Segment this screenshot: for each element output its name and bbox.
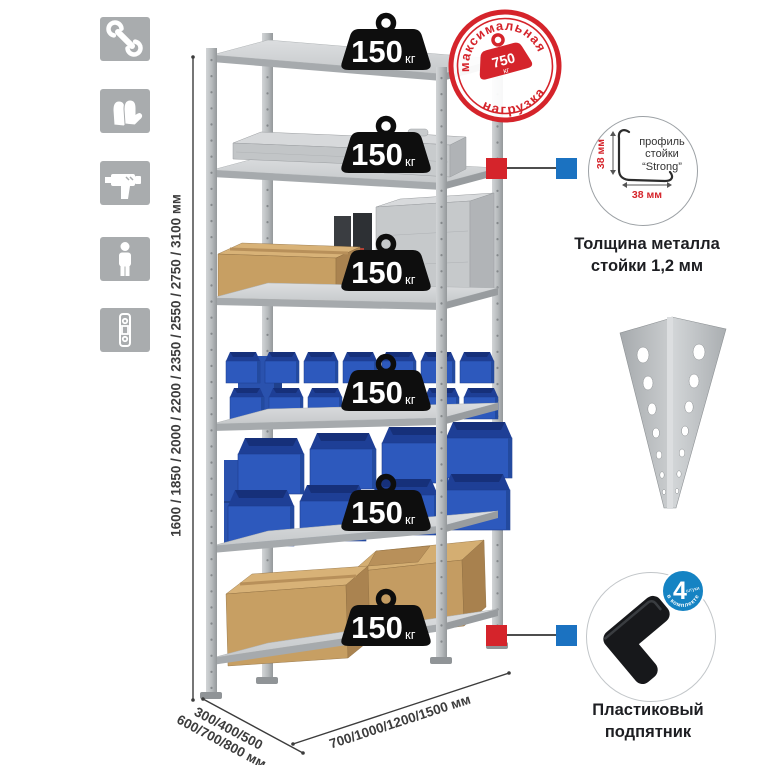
sidebar-icon-tools [100, 17, 150, 61]
svg-text:кг: кг [405, 512, 416, 527]
shelf-load-badge-2: 150 кг [321, 115, 451, 179]
svg-text:профиль: профиль [639, 136, 685, 148]
width-dimension-line [291, 671, 511, 746]
person-icon [101, 237, 149, 281]
svg-text:кг: кг [405, 627, 416, 642]
gloves-icon [101, 89, 149, 133]
svg-text:150: 150 [351, 255, 403, 290]
caption-line: подпятник [548, 722, 748, 744]
svg-text:кг: кг [405, 154, 416, 169]
callout-blue-marker-bottom [556, 625, 577, 646]
profile-thickness-caption: Толщина металла стойки 1,2 мм [547, 234, 747, 278]
max-load-stamp-icon: максимальная нагрузка 750 кг [438, 2, 572, 130]
plastic-foot-caption: Пластиковый подпятник [548, 700, 748, 744]
drill-icon [101, 161, 149, 205]
caption-line: Толщина металла [547, 234, 747, 256]
shelving-infographic: 1600 / 1850 / 2000 / 2200 / 2350 / 2550 … [0, 0, 765, 765]
svg-text:38 мм: 38 мм [595, 139, 607, 169]
svg-text:150: 150 [351, 610, 403, 645]
sidebar-icon-gloves [100, 89, 150, 133]
svg-text:150: 150 [351, 34, 403, 69]
max-load-stamp: максимальная нагрузка 750 кг [438, 2, 572, 130]
shelf-load-badge-3: 150 кг [321, 233, 451, 297]
svg-text:стойки: стойки [645, 148, 679, 160]
shelf-load-badge-6: 150 кг [321, 588, 451, 652]
svg-text:150: 150 [351, 375, 403, 410]
quantity-badge-icon: 4 штуки в комплекте [660, 568, 706, 614]
svg-text:кг: кг [405, 272, 416, 287]
callout-red-marker-top [486, 158, 507, 179]
shelf-load-badge-1: 150 кг [321, 12, 451, 76]
height-dimension-line [191, 55, 195, 702]
callout-blue-marker-top [556, 158, 577, 179]
wrench-icon [101, 17, 149, 61]
shelf-load-badge-5: 150 кг [321, 473, 451, 537]
callout-bottom [486, 625, 577, 646]
weight-icon: 150 кг [321, 353, 451, 417]
callout-top [486, 158, 577, 179]
corner-post-image [600, 305, 740, 520]
profile-detail-circle: 38 мм 38 мм профиль стойки “Strong” [588, 116, 698, 226]
svg-text:кг: кг [405, 51, 416, 66]
height-dimension-label: 1600 / 1850 / 2000 / 2200 / 2350 / 2550 … [168, 156, 183, 576]
shelf-load-badge-4: 150 кг [321, 353, 451, 417]
weight-icon: 150 кг [321, 588, 451, 652]
profile-cross-section-diagram: 38 мм 38 мм профиль стойки “Strong” [589, 117, 696, 224]
weight-icon: 150 кг [321, 115, 451, 179]
svg-text:38 мм: 38 мм [632, 189, 662, 201]
weight-icon: 150 кг [321, 233, 451, 297]
svg-text:150: 150 [351, 495, 403, 530]
svg-text:“Strong”: “Strong” [642, 161, 682, 173]
weight-icon: 150 кг [321, 12, 451, 76]
weight-icon: 150 кг [321, 473, 451, 537]
svg-text:150: 150 [351, 137, 403, 172]
sidebar-icon-fasteners [100, 308, 150, 352]
caption-line: стойки 1,2 мм [547, 256, 747, 278]
sidebar-icon-drill [100, 161, 150, 205]
caption-line: Пластиковый [548, 700, 748, 722]
svg-text:кг: кг [405, 392, 416, 407]
sidebar-icon-person [100, 237, 150, 281]
quantity-badge: 4 штуки в комплекте [660, 568, 706, 614]
callout-red-marker-bottom [486, 625, 507, 646]
fastener-strip-icon [101, 308, 149, 352]
